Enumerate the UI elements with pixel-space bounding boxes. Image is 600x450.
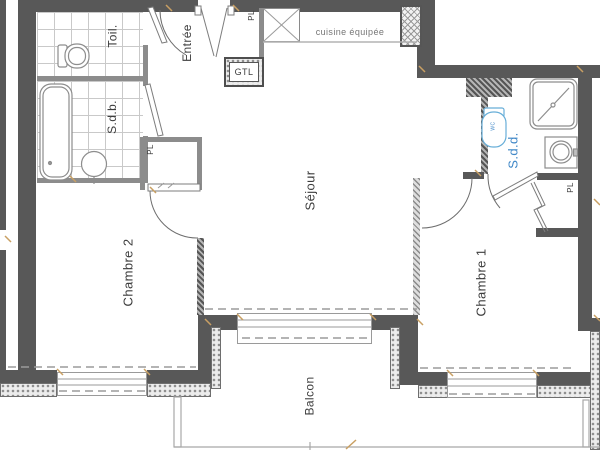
room-label-chambre2: Chambre 2 xyxy=(114,230,142,315)
room-label-balcon: Balcon xyxy=(296,368,324,424)
bathroom-sink xyxy=(82,152,107,177)
sdd-sink-tap xyxy=(574,149,578,156)
room-label-sdd: S.d.d. xyxy=(499,122,527,178)
room-label-toilettes: Toil. xyxy=(99,13,127,58)
chambre2-door-arc xyxy=(150,191,198,238)
entrance-door-leaf-a xyxy=(201,8,214,56)
sdd-sink-bowl-inner xyxy=(553,144,569,160)
room-label-sejour: Séjour xyxy=(296,160,324,220)
room-label-entree: Entrée xyxy=(173,15,201,70)
label-pl-kitchen: PL xyxy=(243,5,259,25)
shower-drain xyxy=(551,103,555,107)
room-label-cuisine: cuisine équipée xyxy=(313,25,387,39)
kitchen-closet-x xyxy=(264,9,299,41)
chambre2-door-leaf xyxy=(148,184,200,191)
pl1-bifold-door xyxy=(531,182,548,232)
door-arcs xyxy=(150,10,500,238)
bathtub-drain xyxy=(49,162,52,165)
floor-plan: GTL xyxy=(0,0,600,450)
entrance-door-leaf-b xyxy=(216,8,227,57)
bathtub-inner xyxy=(43,87,69,177)
balcony-railing xyxy=(174,397,600,450)
label-pl-hall: PL xyxy=(142,139,158,159)
label-wc: WC xyxy=(486,117,502,135)
label-pl-chambre1: PL xyxy=(562,177,578,197)
entrance-lintel-right xyxy=(228,6,234,15)
toilet-door-leaf xyxy=(148,7,167,43)
bathroom-door-leaf xyxy=(145,84,163,136)
chambre1-door-arc xyxy=(422,178,472,228)
room-label-sdb: S.d.b. xyxy=(98,89,126,144)
sdd-door-arc xyxy=(488,174,500,208)
room-label-chambre1: Chambre 1 xyxy=(467,240,495,325)
toilet-seat xyxy=(69,48,86,65)
entrance-lintel-left xyxy=(195,6,201,15)
